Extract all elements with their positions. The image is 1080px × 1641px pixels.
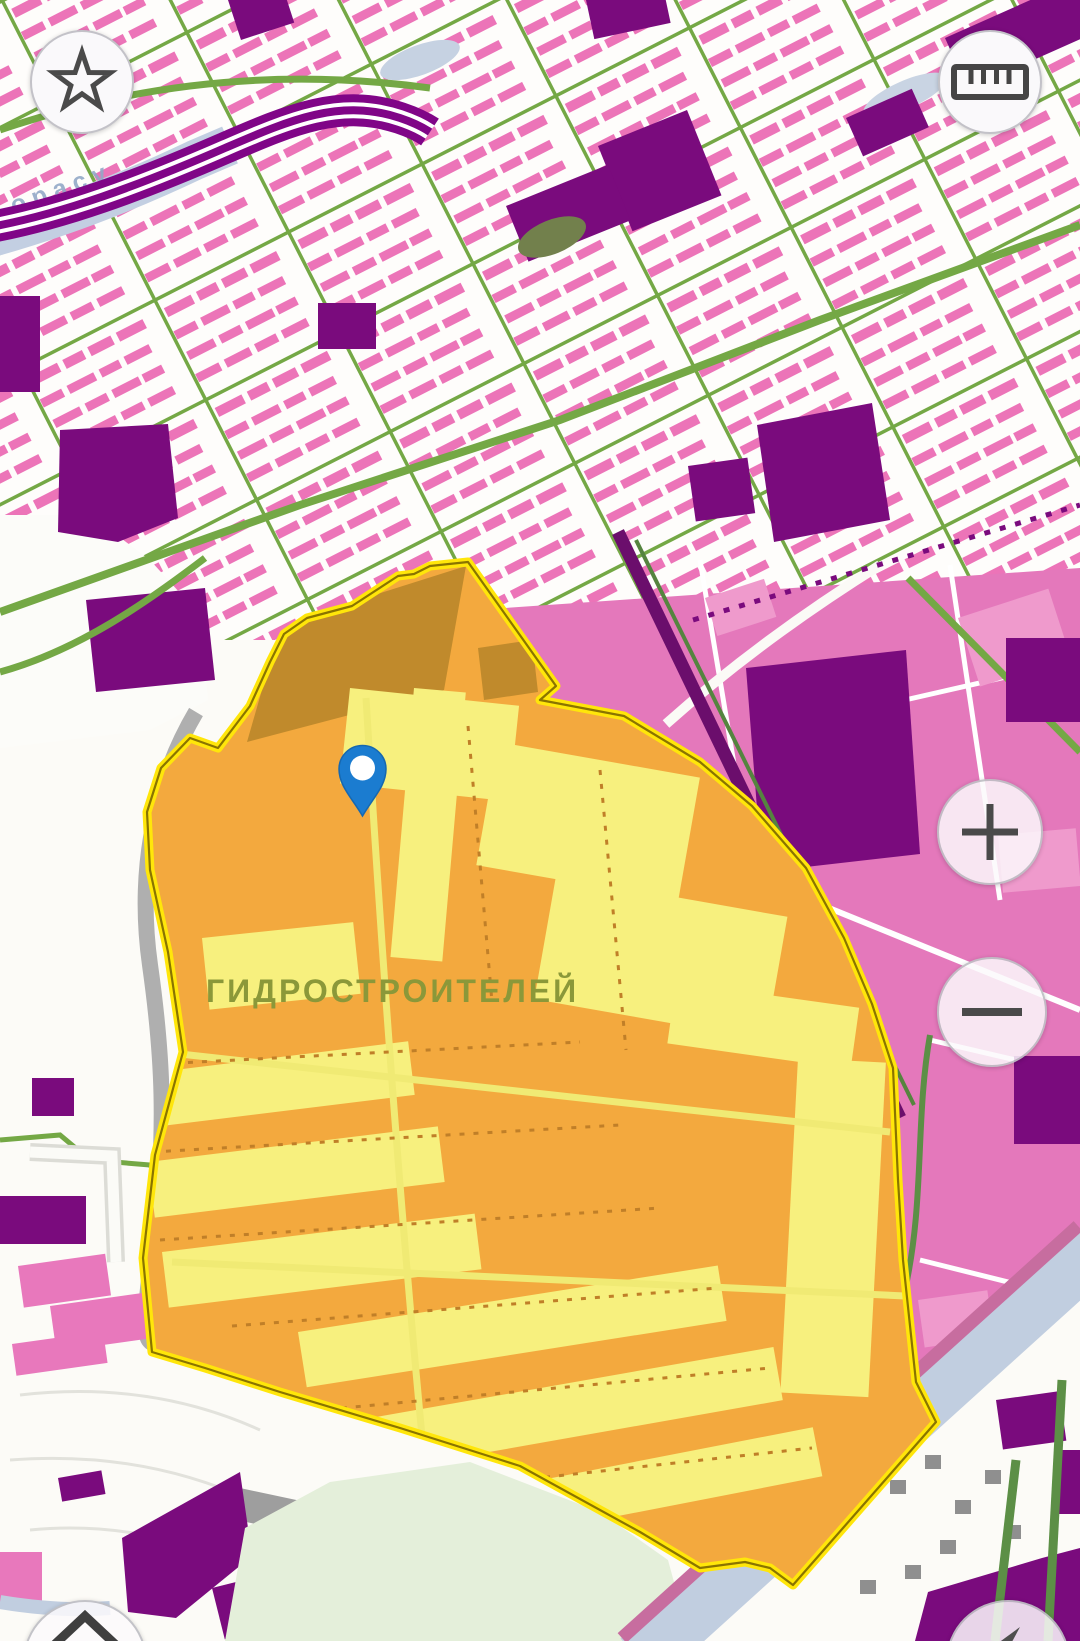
measure-button[interactable] xyxy=(938,30,1042,134)
ruler-icon xyxy=(946,52,1034,112)
zoom-out-button[interactable] xyxy=(937,957,1047,1067)
district-label: ГИДРОСТРОИТЕЛЕЙ xyxy=(206,973,579,1009)
favorites-button[interactable] xyxy=(30,30,134,134)
chevron-up-icon xyxy=(43,1600,127,1641)
map-screen: орасу xyxy=(0,0,1080,1641)
star-icon xyxy=(44,44,120,120)
map-canvas[interactable]: орасу xyxy=(0,0,1080,1641)
plus-icon xyxy=(955,797,1025,867)
zoom-in-button[interactable] xyxy=(937,779,1043,885)
minus-icon xyxy=(956,976,1028,1048)
compass-needle-icon xyxy=(978,1605,1038,1641)
